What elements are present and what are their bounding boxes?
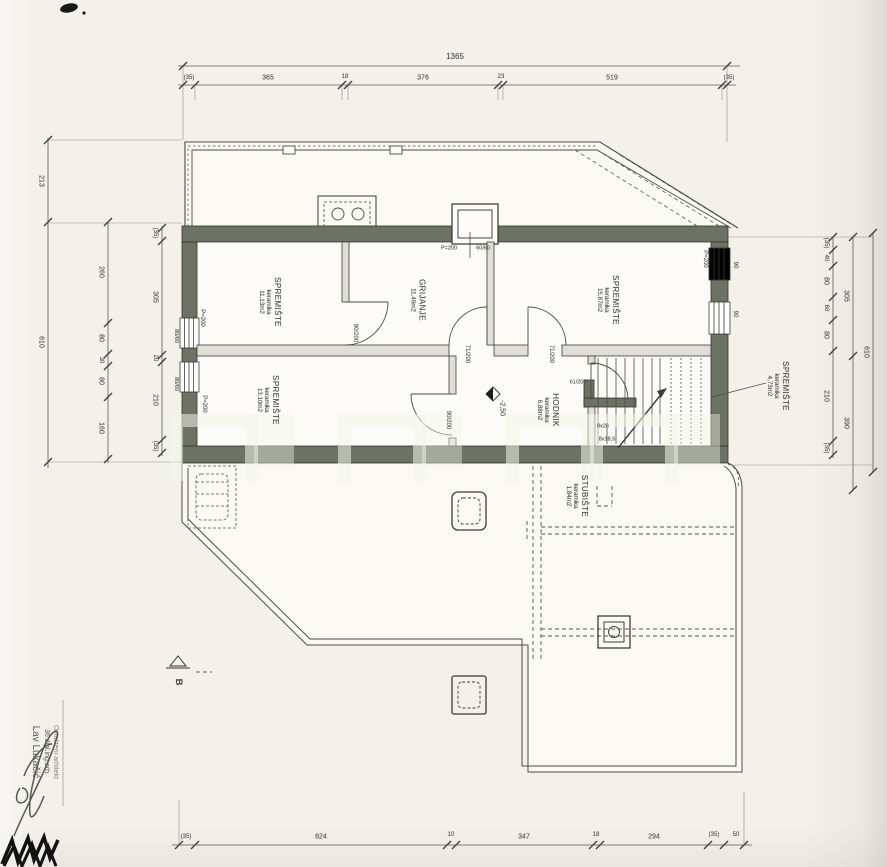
dim-label: 210 bbox=[152, 394, 159, 406]
room-material: keramika bbox=[265, 277, 272, 327]
dim-label: 213 bbox=[38, 175, 45, 187]
room-label-spremiste-1: SPREMIŠTE keramika 11,13m2 bbox=[258, 277, 282, 327]
dim-label: 260 bbox=[98, 266, 105, 278]
dim-label: 80 bbox=[98, 334, 105, 342]
door-size-label: 61/200 bbox=[570, 380, 587, 386]
watermark-glyph bbox=[338, 414, 426, 481]
dim-label: 23 bbox=[498, 74, 505, 80]
dim-label: (35) bbox=[823, 238, 829, 249]
dim-label: (35) bbox=[709, 832, 720, 838]
dim-label: 80 bbox=[98, 377, 105, 385]
room-name: SPREMIŠTE bbox=[781, 361, 791, 411]
room-name: SPREMIŠTE bbox=[273, 277, 283, 327]
parapet-label: P=200 bbox=[201, 395, 207, 413]
room-material: keramika bbox=[572, 475, 579, 517]
dim-label: 376 bbox=[417, 75, 429, 82]
room-material: keramika bbox=[603, 275, 610, 325]
dim-label: 80 bbox=[823, 331, 830, 339]
dim-label: 294 bbox=[648, 834, 660, 841]
dim-label: 210 bbox=[823, 390, 830, 402]
dim-label: (35) bbox=[724, 75, 735, 81]
window-size-label: 90 bbox=[732, 311, 738, 318]
room-area: 15,87m2 bbox=[596, 275, 603, 325]
room-label-grijanje: GRIJANJE 11,46m2 bbox=[409, 279, 426, 321]
door-size-label: 90/200 bbox=[445, 411, 451, 429]
room-label-spremiste-3: SPREMIŠTE keramika 13,10m2 bbox=[256, 375, 280, 425]
door-size-label: 71/200 bbox=[548, 345, 554, 363]
dim-label: 1365 bbox=[446, 53, 464, 61]
watermark-glyph bbox=[422, 414, 462, 468]
parapet-label: P=200 bbox=[199, 309, 205, 327]
room-label-spremiste-4: SPREMIŠTE keramika 4,73m2 bbox=[766, 361, 790, 411]
watermark-glyph bbox=[674, 414, 720, 468]
dim-label: 10 bbox=[448, 832, 455, 838]
room-name: STUBIŠTE bbox=[580, 475, 590, 517]
dim-label: 390 bbox=[843, 417, 850, 429]
chimney-size-label: 60/60 bbox=[476, 246, 490, 252]
room-area: 1,84m2 bbox=[565, 475, 572, 517]
stamp-name: Lav Lukačić bbox=[29, 725, 42, 779]
dim-label: 365 bbox=[262, 75, 274, 82]
room-material: keramika bbox=[263, 375, 270, 425]
dim-label: 347 bbox=[518, 834, 530, 841]
room-label-stubiste: STUBIŠTE keramika 1,84m2 bbox=[565, 475, 589, 517]
dim-label: 610 bbox=[863, 346, 870, 358]
parapet-label: P=200 bbox=[441, 246, 457, 252]
room-label-spremiste-2: SPREMIŠTE keramika 15,87m2 bbox=[596, 275, 620, 325]
dim-label: 610 bbox=[38, 336, 45, 348]
stamp-subtitle: Ovlašteni arhitekt bbox=[50, 725, 59, 779]
floor-plan-scan: SPREMIŠTE keramika 11,13m2 GRIJANJE 11,4… bbox=[0, 0, 887, 867]
room-name: SPREMIŠTE bbox=[271, 375, 281, 425]
room-material: keramika bbox=[543, 393, 550, 427]
room-area: 6,88m2 bbox=[536, 393, 543, 427]
watermark-glyph bbox=[170, 414, 258, 481]
stairs-treads-label: 8x26 bbox=[597, 424, 609, 430]
dim-label: 80 bbox=[823, 277, 830, 285]
dim-label: 30 bbox=[98, 357, 104, 364]
window-size-label: 90 bbox=[732, 262, 738, 269]
window-size-label: 80/60 bbox=[172, 329, 178, 343]
room-area: 11,13m2 bbox=[258, 277, 265, 327]
room-area: 11,46m2 bbox=[409, 279, 416, 321]
dim-label: 160 bbox=[98, 422, 105, 434]
dim-label: (35) bbox=[152, 228, 158, 239]
architect-stamp: Ovlašteni arhitekt 36.dipl.ing.arh. Lav … bbox=[29, 725, 59, 779]
section-marker bbox=[166, 656, 212, 672]
stamp-title: 36.dipl.ing.arh. bbox=[42, 725, 51, 779]
dim-label: (35) bbox=[152, 441, 158, 452]
door-size-label: 90/200 bbox=[352, 324, 358, 342]
stairs-risers-label: 8x18,5 bbox=[599, 437, 616, 443]
dim-label: 305 bbox=[843, 290, 850, 302]
room-area: 13,10m2 bbox=[256, 375, 263, 425]
level-label: -2,50 bbox=[499, 400, 506, 416]
room-name: GRIJANJE bbox=[417, 279, 427, 321]
room-name: SPREMIŠTE bbox=[611, 275, 621, 325]
lower-terrace bbox=[182, 462, 742, 772]
dim-label: 40 bbox=[823, 255, 829, 262]
dim-label: (35) bbox=[181, 834, 192, 840]
dim-label: 305 bbox=[152, 291, 159, 303]
dim-label: 519 bbox=[606, 75, 618, 82]
dim-label: 18 bbox=[342, 74, 349, 80]
window-size-label: 80/60 bbox=[172, 377, 178, 391]
corner-zigzag bbox=[2, 837, 58, 866]
dim-label: (35) bbox=[823, 443, 829, 454]
room-label-hodnik: HODNIK keramika 6,88m2 bbox=[536, 393, 560, 427]
dim-label: 50 bbox=[733, 832, 740, 838]
room-material: keramika bbox=[773, 361, 780, 411]
dim-label: 18 bbox=[593, 832, 600, 838]
dim-label: (35) bbox=[184, 75, 195, 81]
door-size-label: 71/200 bbox=[464, 345, 470, 363]
section-mark-label: B bbox=[173, 679, 183, 686]
ink-blob bbox=[59, 2, 85, 15]
parapet-label: P=200 bbox=[702, 250, 708, 268]
room-name: HODNIK bbox=[551, 393, 561, 427]
dim-label: 20 bbox=[152, 355, 158, 362]
room-area: 4,73m2 bbox=[766, 361, 773, 411]
dim-label: 60 bbox=[823, 305, 829, 312]
dim-label: 624 bbox=[315, 834, 327, 841]
